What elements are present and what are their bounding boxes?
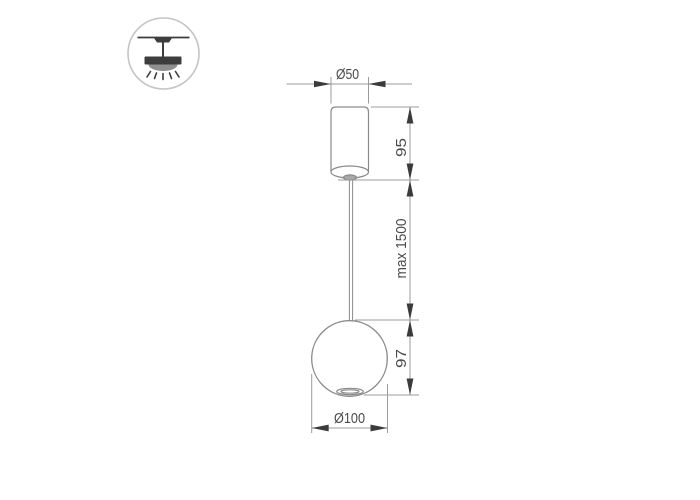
- cylinder-right-side: [331, 107, 369, 172]
- lamp-outline: [312, 107, 388, 396]
- sphere-diffuser: [312, 321, 388, 397]
- label-sphere-height: 97: [393, 349, 410, 368]
- label-suspension-length: max 1500: [393, 219, 410, 279]
- dimension-top-diameter: Ø50: [287, 66, 413, 104]
- icon-light-rays: [147, 72, 179, 80]
- suspension-cord: [349, 180, 352, 321]
- ceiling-pendant-mount-icon: [128, 18, 199, 89]
- label-canopy-height: 95: [393, 138, 410, 157]
- label-top-diameter: Ø50: [336, 66, 359, 83]
- dimension-drawing-page: Ø50 95 max 1500 97: [0, 0, 700, 500]
- pendant-lamp-dimension-drawing: Ø50 95 max 1500 97: [0, 0, 700, 500]
- icon-canopy: [154, 38, 172, 43]
- icon-lamp-dome: [149, 65, 178, 72]
- icon-lamp-body: [145, 57, 182, 65]
- label-sphere-diameter: Ø100: [334, 410, 365, 427]
- cord-grip: [344, 175, 357, 180]
